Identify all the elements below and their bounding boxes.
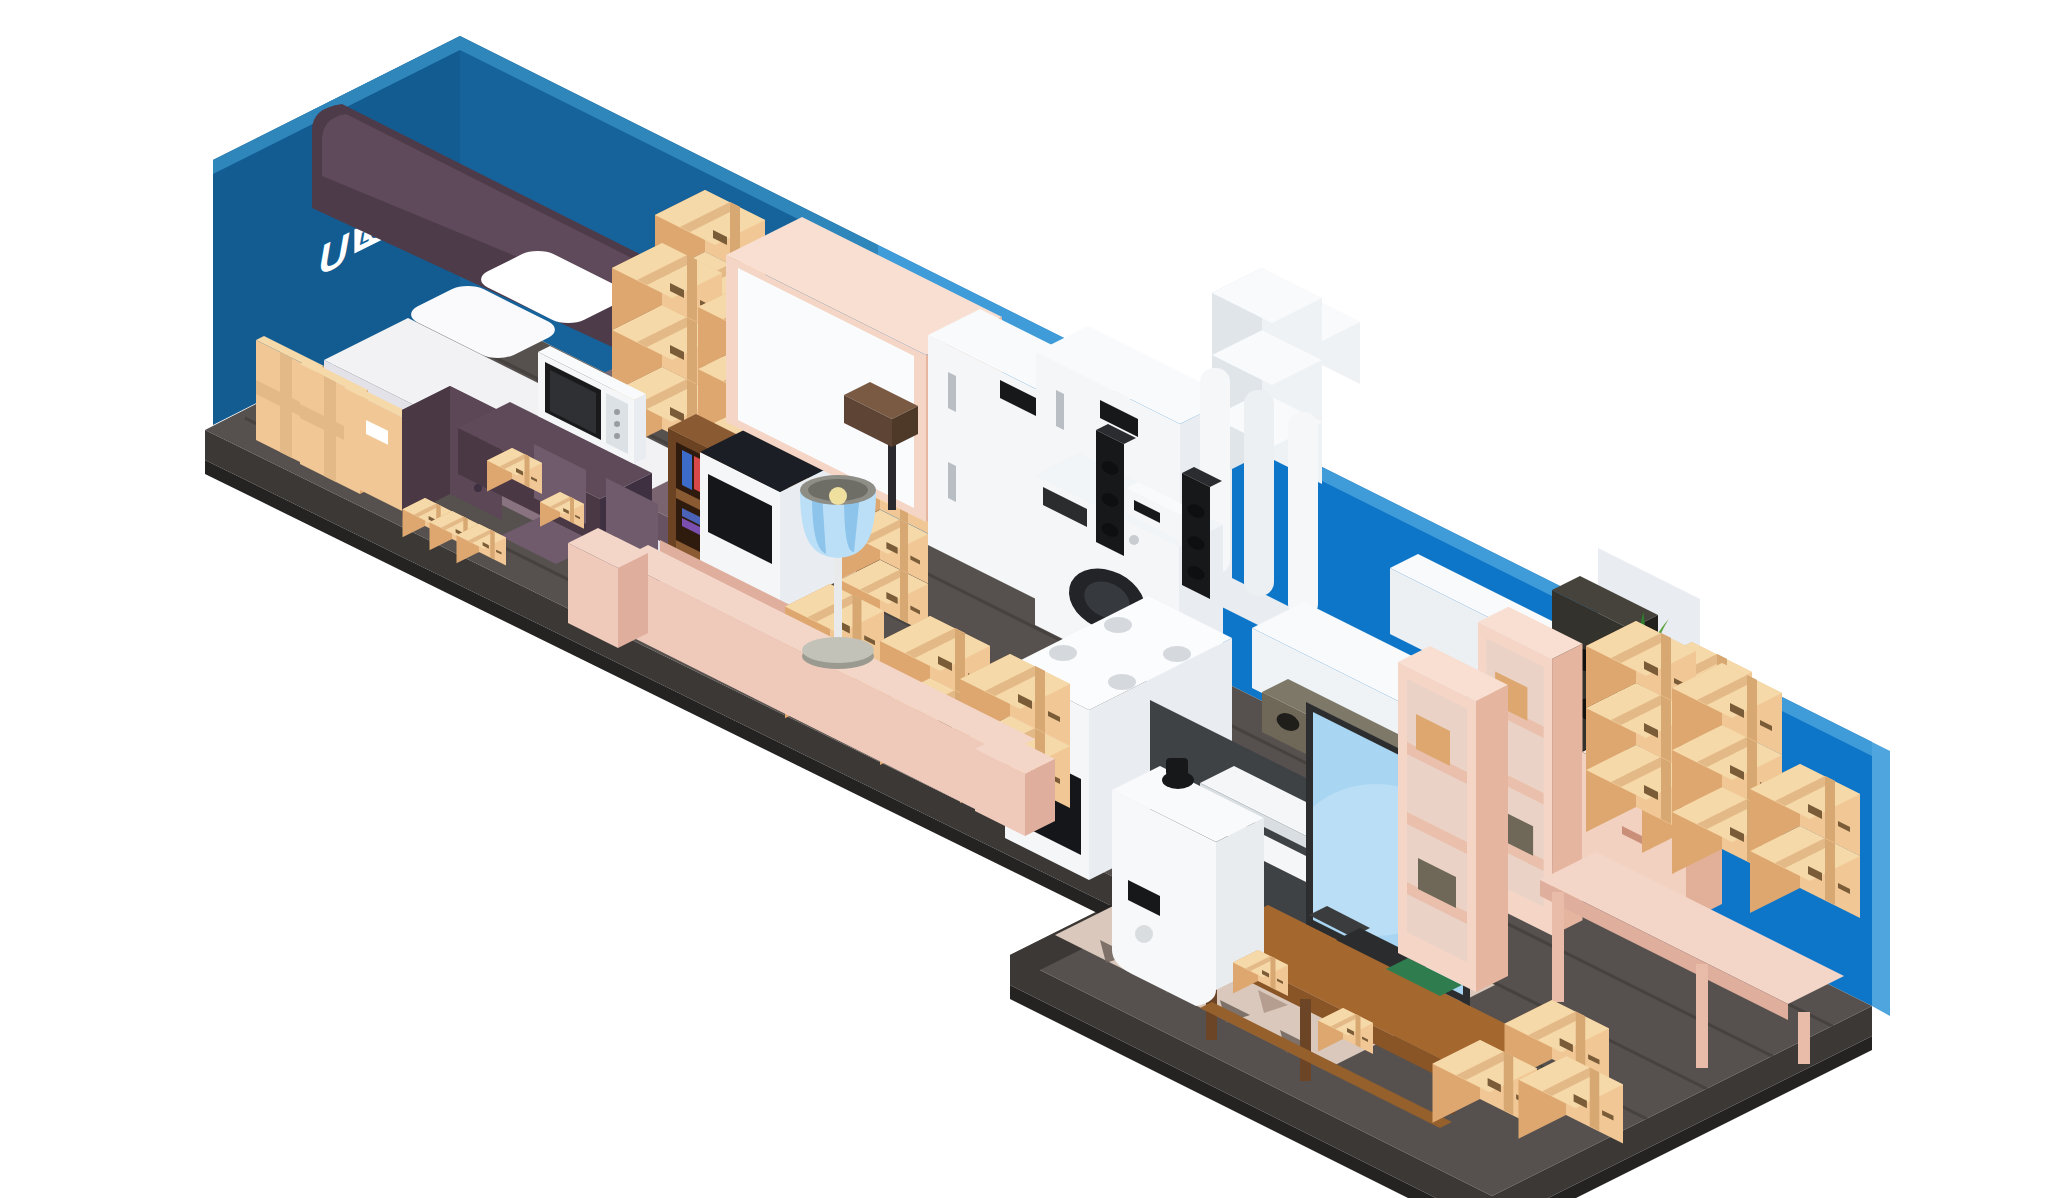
burner: [1163, 646, 1191, 662]
white-column: [1244, 390, 1274, 596]
scene-canvas: U STORE LOCK: [0, 0, 2048, 1198]
burner: [1104, 617, 1132, 633]
fridge-handle: [948, 462, 956, 502]
table-leg: [1696, 964, 1708, 1068]
heater-cap: [1166, 758, 1188, 776]
storage-unit-illustration: U STORE LOCK: [0, 0, 2048, 1198]
fridge-handle: [948, 372, 956, 412]
lamp-bulb: [829, 487, 847, 505]
burner: [1049, 645, 1077, 661]
white-column: [1288, 412, 1318, 618]
heater-knob: [1135, 925, 1153, 943]
bench-leg: [1300, 999, 1311, 1081]
fridge-handle: [1056, 390, 1064, 430]
right-wall-edge: [1872, 742, 1890, 1016]
table-leg: [1798, 1012, 1810, 1064]
table-leg: [1552, 892, 1564, 1002]
burner: [1108, 674, 1136, 690]
pink-shelf: [1398, 646, 1508, 992]
